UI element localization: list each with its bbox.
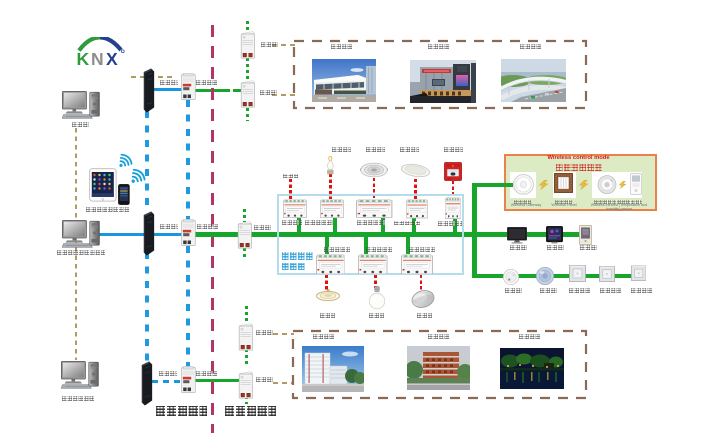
- svg-text:K: K: [77, 49, 90, 67]
- svg-text:N: N: [91, 49, 104, 67]
- svg-text:X: X: [106, 49, 118, 67]
